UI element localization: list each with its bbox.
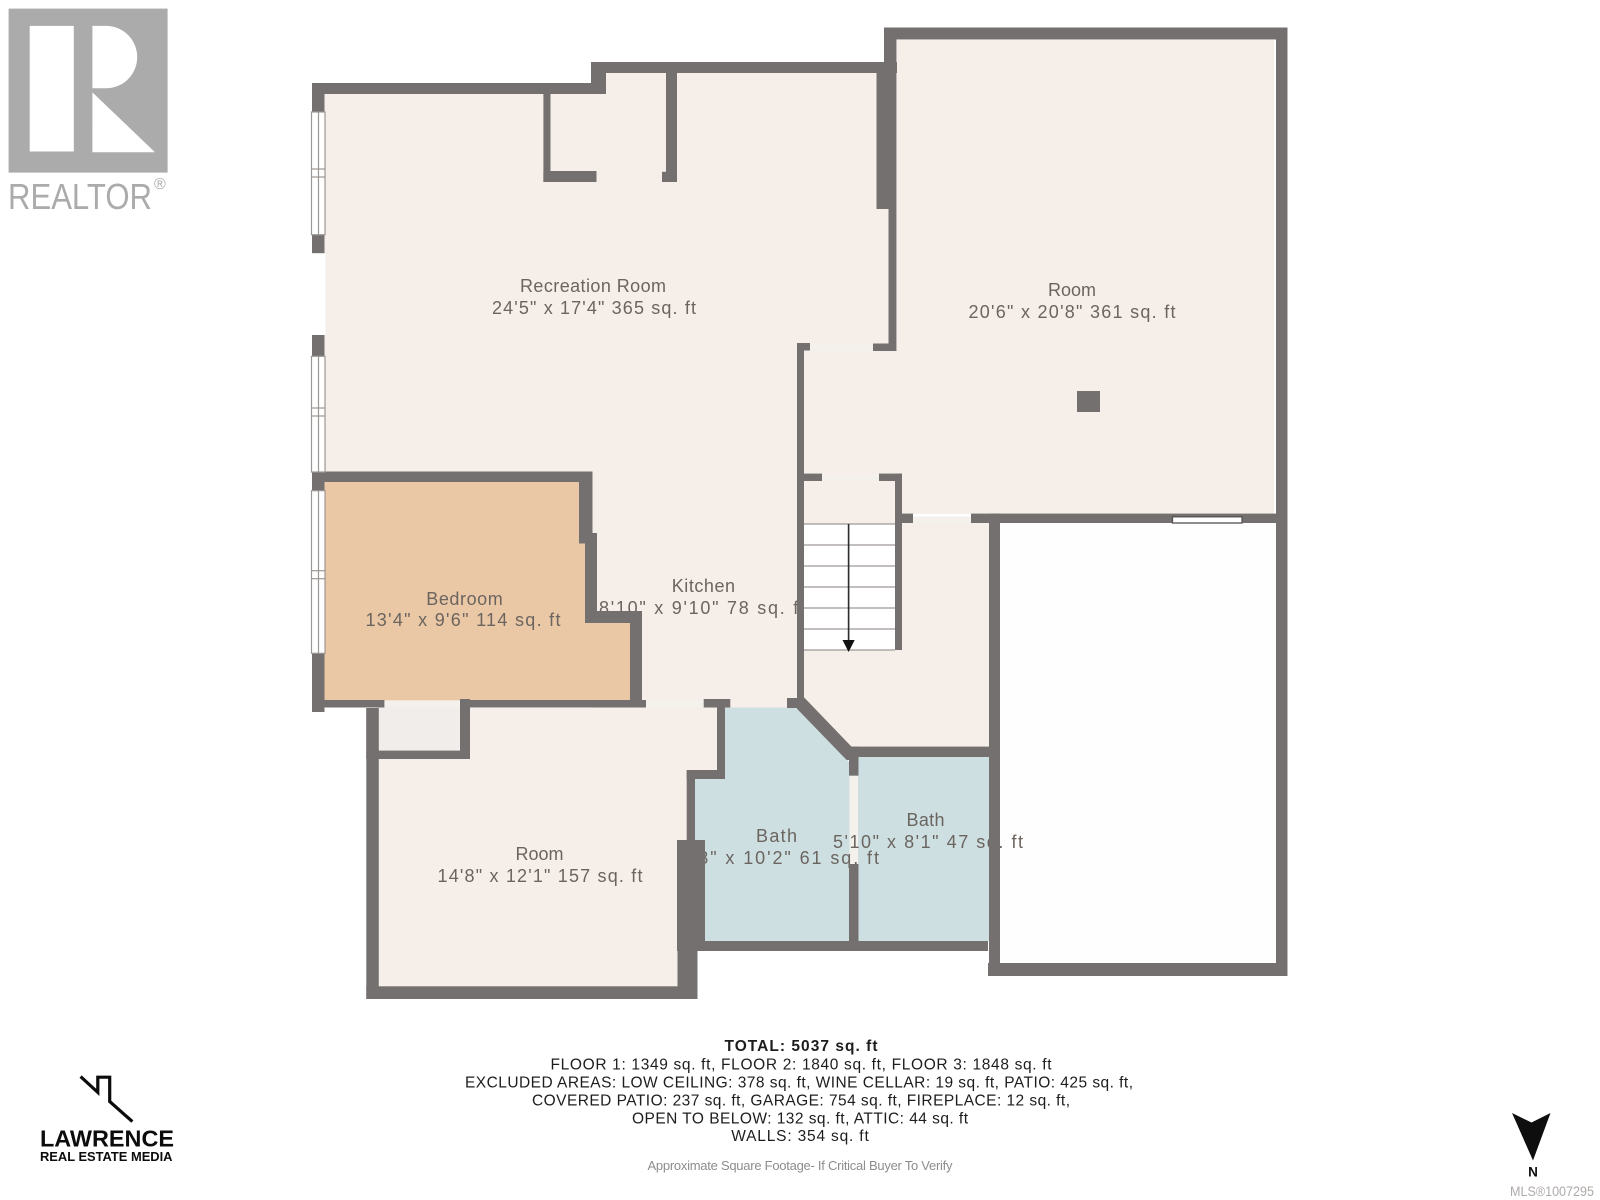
svg-text:LAWRENCE: LAWRENCE [40, 1126, 174, 1152]
svg-text:®: ® [154, 176, 166, 193]
svg-text:Room: Room [1048, 280, 1096, 300]
svg-text:TOTAL: 5037 sq. ft: TOTAL: 5037 sq. ft [725, 1038, 878, 1055]
svg-text:Room: Room [516, 844, 564, 864]
svg-text:FLOOR 1: 1349 sq. ft, FLOOR 2:: FLOOR 1: 1349 sq. ft, FLOOR 2: 1840 sq. … [551, 1057, 1053, 1074]
svg-text:Bath: Bath [756, 826, 797, 846]
svg-text:Approximate Square Footage- If: Approximate Square Footage- If Critical … [648, 1158, 954, 1173]
svg-text:Bath: Bath [907, 810, 945, 830]
svg-text:REALTOR: REALTOR [8, 176, 152, 217]
svg-text:REAL ESTATE MEDIA: REAL ESTATE MEDIA [40, 1149, 173, 1164]
svg-text:EXCLUDED AREAS: LOW CEILING: 3: EXCLUDED AREAS: LOW CEILING: 378 sq. ft,… [465, 1075, 1133, 1092]
svg-text:Recreation Room: Recreation Room [520, 276, 666, 296]
svg-text:14'8" x 12'1" 157 sq. ft: 14'8" x 12'1" 157 sq. ft [438, 866, 643, 886]
svg-text:24'5" x 17'4" 365 sq. ft: 24'5" x 17'4" 365 sq. ft [492, 298, 696, 318]
svg-text:20'6" x 20'8" 361 sq. ft: 20'6" x 20'8" 361 sq. ft [969, 302, 1176, 322]
svg-text:WALLS: 354 sq. ft: WALLS: 354 sq. ft [731, 1128, 869, 1145]
svg-text:MLS®1007295: MLS®1007295 [1510, 1183, 1594, 1199]
svg-text:13'4" x 9'6" 114 sq. ft: 13'4" x 9'6" 114 sq. ft [366, 610, 561, 630]
svg-text:N: N [1528, 1165, 1538, 1180]
svg-text:OPEN TO BELOW: 132 sq. ft, ATT: OPEN TO BELOW: 132 sq. ft, ATTIC: 44 sq.… [632, 1111, 969, 1128]
svg-text:Kitchen: Kitchen [672, 576, 735, 596]
svg-text:Bedroom: Bedroom [426, 589, 503, 609]
svg-text:COVERED PATIO: 237 sq. ft, GAR: COVERED PATIO: 237 sq. ft, GARAGE: 754 s… [532, 1093, 1070, 1110]
